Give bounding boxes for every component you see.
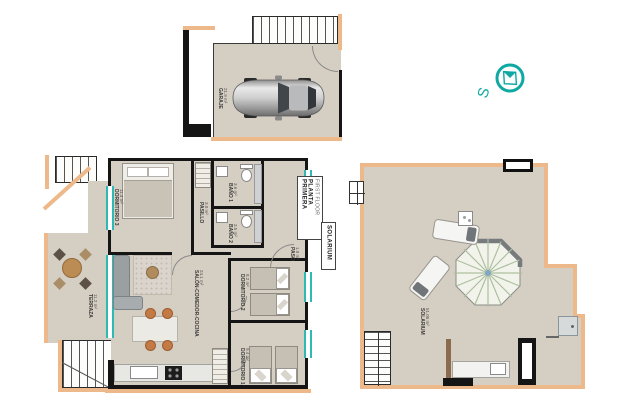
wall-segment [228,320,308,323]
wall-segment [211,206,264,209]
shower [254,210,262,243]
trim-segment [338,14,342,50]
trim-segment [44,233,48,343]
wall-segment [228,258,308,261]
coffee-table [146,266,159,279]
sofa-chaise [113,296,143,310]
toilet [241,169,252,182]
toilet [241,215,252,228]
pillow-frame [276,268,289,289]
dining-chair [145,308,156,319]
window [304,330,312,358]
side-landing [349,181,364,204]
sink [216,166,228,177]
trim-segment [573,264,577,318]
terrace-table [62,258,82,278]
dining-table [132,316,178,342]
lower-stairs [62,340,112,388]
floorplan-canvas: GARAJE 21.9 m² S TERRAZA 11.2 m [0,0,620,415]
single-bed [275,346,298,384]
trim-segment [58,340,62,392]
dining-chair [162,308,173,319]
plan-title: SOLARIUM [326,225,332,267]
car-icon [228,74,328,122]
niche [522,343,532,379]
window [304,272,312,302]
roof-hatch [503,159,533,172]
plan-subtitle: FIRST FLOOR [314,179,320,237]
side-table [458,211,473,226]
trim-segment [45,155,49,189]
single-bed [250,267,290,290]
window [106,186,114,230]
dining-chair [162,340,173,351]
double-bed [122,163,174,219]
outdoor-shower [558,316,578,336]
wall-segment [191,161,194,255]
dining-chair [145,340,156,351]
solarium-title-box: SOLARIUM [321,222,336,270]
pillow [127,167,148,177]
garage-stairs [252,16,338,44]
parasol-icon [451,236,525,310]
wardrobe [212,348,228,384]
trim-segment [211,137,342,141]
bbq-sink [490,363,506,375]
trim-segment [105,389,311,393]
compass-south-letter: S [474,85,493,100]
single-bed [249,346,272,384]
compass-icon: S [472,54,538,116]
sofa [113,255,130,301]
pillow-frame [276,294,289,315]
trim-segment [544,163,548,267]
wall-segment [183,30,189,137]
pillow-frame [250,368,271,383]
sink [216,212,228,223]
first-floor-title-box: PLANTA PRIMERA FIRST FLOOR [297,176,323,240]
solarium-stairs [364,331,391,385]
wall-segment [211,161,214,248]
pillar [446,339,451,381]
single-bed [250,293,290,316]
wardrobe [195,162,211,188]
pillow [148,167,169,177]
wall-segment [183,124,211,137]
wall-segment [191,252,231,255]
wall-segment [443,378,473,386]
plan-title: PLANTA PRIMERA [301,179,313,237]
pillow-frame [276,368,297,383]
stove [165,366,182,380]
trim-segment [581,314,585,387]
kitchen-sink [130,366,158,379]
shower [254,164,262,204]
wall-segment [339,70,342,137]
wall-segment [211,245,264,248]
wall-segment [108,158,308,161]
blanket [124,180,172,217]
wall-segment [546,336,559,338]
